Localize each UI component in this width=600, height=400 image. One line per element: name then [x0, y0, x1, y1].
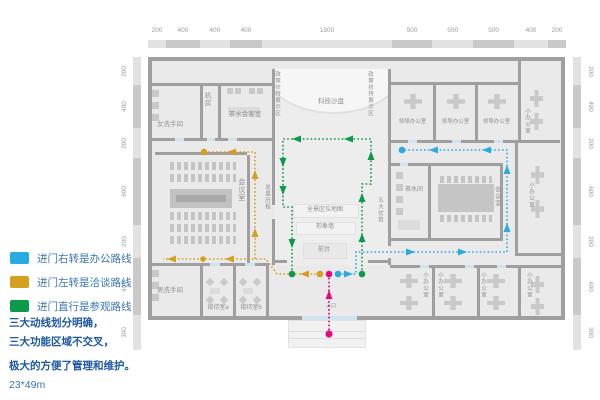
route-overlay — [0, 0, 600, 400]
entry-arrow — [326, 290, 333, 299]
tour-arrow — [280, 186, 287, 195]
tour-arrow — [292, 136, 301, 143]
talk-arrow — [252, 228, 259, 237]
tour-arrow — [344, 136, 353, 143]
talk-arrow — [227, 149, 236, 156]
office-arrow — [504, 223, 511, 232]
office-route-line — [338, 150, 507, 274]
tour-arrow — [359, 193, 366, 202]
office-dot — [335, 271, 342, 278]
tour-arrow — [368, 151, 375, 160]
talk-end-dot — [201, 149, 208, 156]
office-arrow — [406, 249, 415, 256]
office-end-dot — [399, 147, 406, 154]
talk-arrow — [252, 170, 259, 179]
talk-route-line — [163, 152, 320, 274]
office-arrow — [482, 147, 491, 154]
entry-start-dot — [325, 330, 332, 337]
tour-arrow — [280, 158, 287, 167]
tour-arrow — [289, 239, 296, 248]
office-arrow — [458, 249, 467, 256]
talk-arrow — [225, 256, 234, 263]
tour-dot — [289, 271, 296, 278]
talk-dot — [317, 271, 324, 278]
entry-dot — [326, 271, 333, 278]
talk-arrow — [300, 271, 309, 278]
tour-route-line — [283, 139, 371, 274]
talk-arrow — [167, 256, 176, 263]
office-arrow — [504, 165, 511, 174]
tour-dot — [359, 271, 366, 278]
tour-arrow — [359, 233, 366, 242]
office-arrow — [344, 271, 353, 278]
office-arrow — [429, 147, 438, 154]
talk-dot — [200, 256, 206, 262]
